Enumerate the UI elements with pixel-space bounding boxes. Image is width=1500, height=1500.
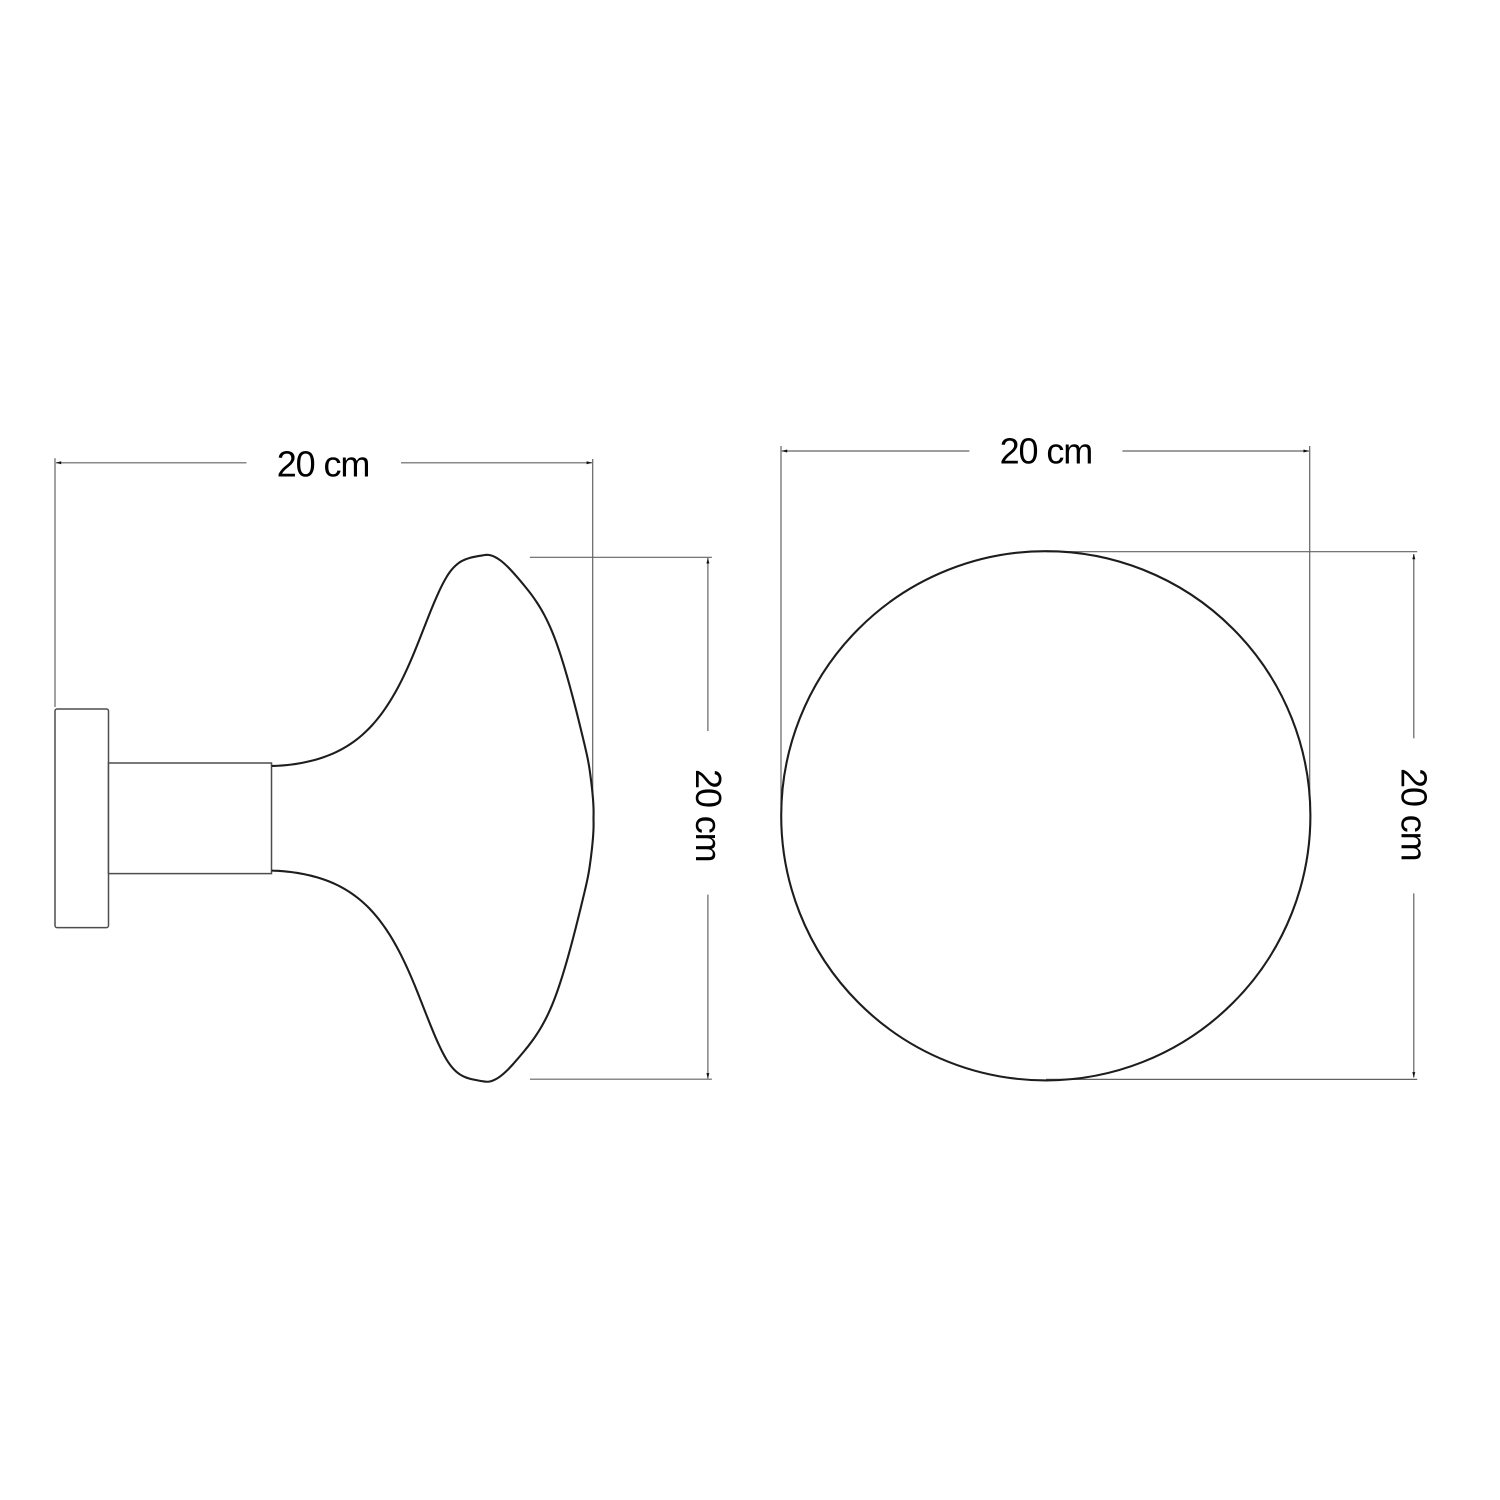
- svg-text:20 cm: 20 cm: [277, 444, 370, 485]
- svg-text:20 cm: 20 cm: [1000, 430, 1093, 471]
- svg-text:20 cm: 20 cm: [688, 769, 729, 862]
- svg-text:20 cm: 20 cm: [1394, 768, 1435, 861]
